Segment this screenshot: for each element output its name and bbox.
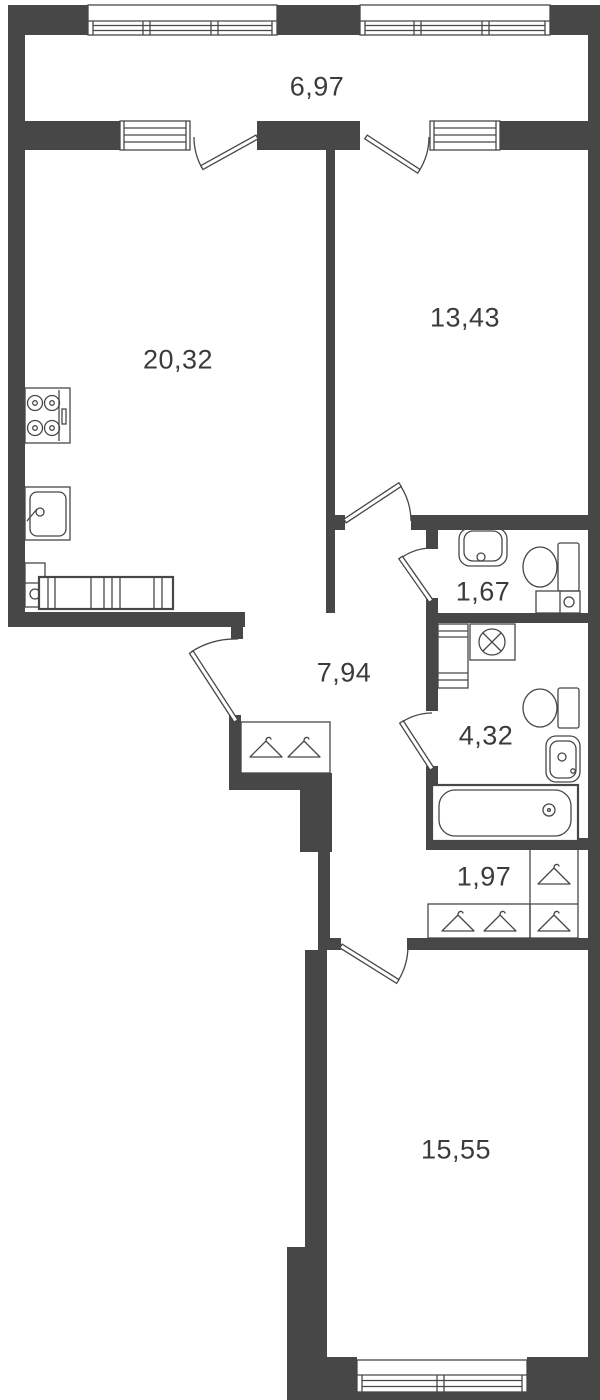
- hanger-icon: [442, 911, 474, 931]
- door-entry: [189, 639, 238, 722]
- toilet-icon: [523, 543, 579, 591]
- balcony-window-unit-icon: [120, 121, 190, 150]
- hanger-icon: [538, 911, 570, 931]
- washbasin-icon: [546, 736, 580, 782]
- balcony-window-unit-icon: [430, 121, 500, 150]
- washing-machine-icon: [470, 624, 515, 660]
- door-balcony-kitchen: [194, 135, 258, 169]
- bathtub-icon: [432, 785, 578, 841]
- plan-symbols: [0, 0, 600, 1400]
- room-label-bedroom: 13,43: [430, 303, 500, 334]
- room-label-hallway: 7,94: [317, 658, 372, 689]
- room-label-balcony: 6,97: [290, 72, 345, 103]
- room-label-kitchen-living: 20,32: [143, 345, 213, 376]
- room-label-bedroom-main: 15,55: [421, 1135, 491, 1166]
- boiler-box-icon: [536, 591, 580, 613]
- hanger-icon: [288, 737, 320, 757]
- door-balcony-bedroom: [365, 135, 429, 173]
- door-bedroom: [344, 483, 411, 523]
- door-wc: [399, 548, 433, 602]
- floor-plan: 6,97 20,32 13,43 7,94 1,67 4,32 1,97 15,…: [0, 0, 600, 1400]
- hanger-icon: [250, 737, 282, 757]
- window-icon: [88, 5, 277, 35]
- room-label-wardrobe-hall: 1,97: [457, 862, 512, 893]
- room-label-wc: 1,67: [456, 577, 511, 608]
- hanger-icon: [538, 864, 570, 884]
- toilet-icon: [523, 688, 579, 728]
- door-bathroom: [400, 713, 434, 770]
- stove-icon: [25, 388, 70, 443]
- counter-sofa-icon: [39, 577, 173, 609]
- hanger-icon: [484, 911, 516, 931]
- door-bedroom-main: [340, 944, 408, 983]
- bathroom-cabinet-icon: [438, 624, 468, 688]
- washbasin-icon: [459, 528, 507, 566]
- kitchen-sink-icon: [25, 487, 70, 540]
- window-icon: [357, 1360, 527, 1392]
- window-icon: [360, 5, 550, 35]
- room-label-bathroom: 4,32: [459, 721, 514, 752]
- coat-closet: [241, 722, 330, 773]
